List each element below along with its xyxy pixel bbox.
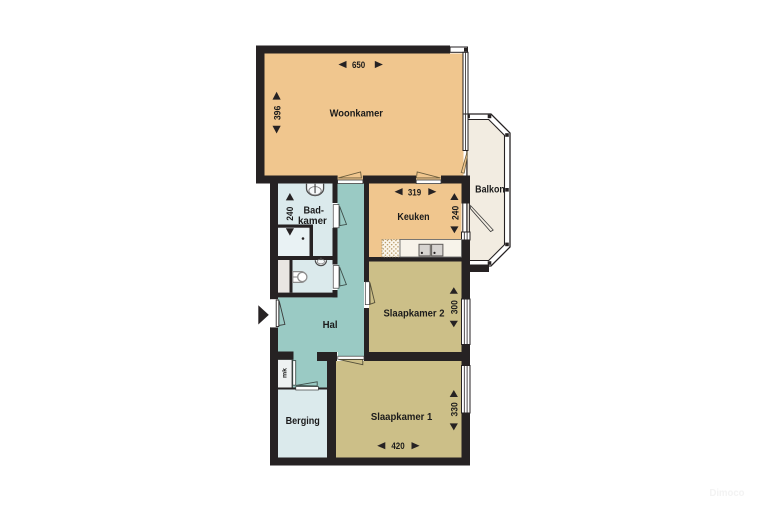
svg-text:Woonkamer: Woonkamer	[330, 109, 383, 120]
svg-text:Hal: Hal	[323, 320, 338, 331]
svg-text:mk: mk	[282, 368, 289, 378]
svg-text:Balkon: Balkon	[475, 184, 505, 195]
svg-text:319: 319	[408, 187, 421, 198]
svg-text:Berging: Berging	[286, 416, 320, 427]
svg-text:330: 330	[450, 402, 461, 416]
svg-text:Slaapkamer 1: Slaapkamer 1	[371, 412, 433, 423]
svg-text:650: 650	[352, 60, 365, 71]
svg-text:Dimoco: Dimoco	[710, 488, 745, 499]
svg-text:240: 240	[285, 207, 296, 221]
svg-text:240: 240	[450, 206, 461, 220]
svg-text:kamer: kamer	[298, 216, 327, 227]
svg-text:300: 300	[450, 300, 461, 314]
svg-text:Keuken: Keuken	[397, 212, 429, 223]
svg-text:Slaapkamer 2: Slaapkamer 2	[384, 309, 445, 320]
svg-text:420: 420	[391, 441, 404, 452]
svg-text:396: 396	[272, 106, 283, 121]
